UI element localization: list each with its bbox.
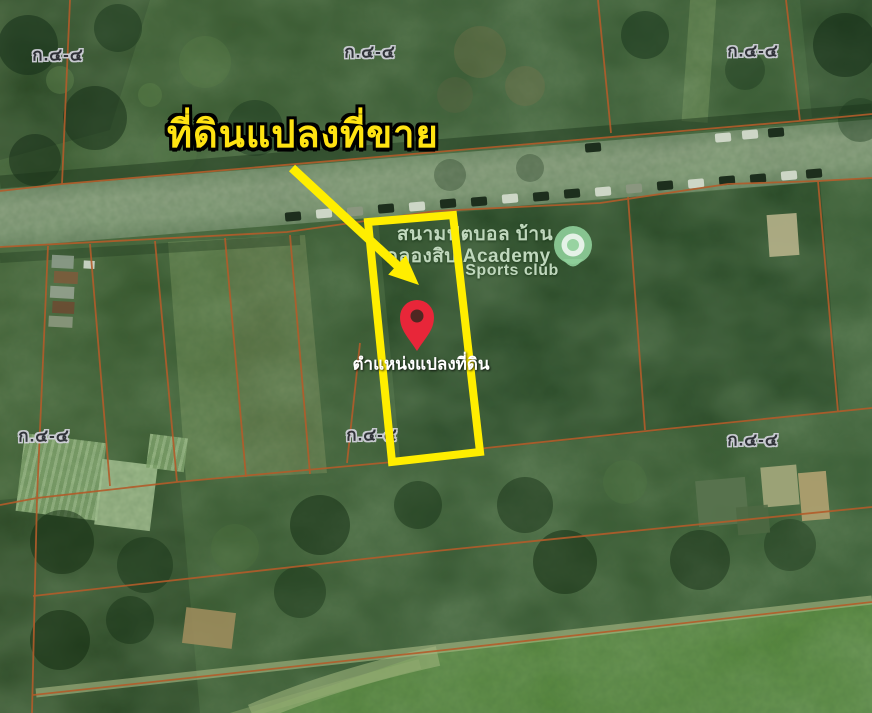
sale-plot-title: ที่ดินแปลงที่ขาย <box>167 103 439 164</box>
location-pin-icon <box>400 300 434 351</box>
plot-position-label: ตำแหน่งแปลงที่ดิน <box>352 351 489 378</box>
satellite-map: ก.๔-๔ ก.๔-๔ ก.๔-๔ ก.๔-๔ ก.๔-๔ ก.๔-๔ สนาม… <box>0 0 872 713</box>
pointer-arrow-icon <box>292 168 419 285</box>
